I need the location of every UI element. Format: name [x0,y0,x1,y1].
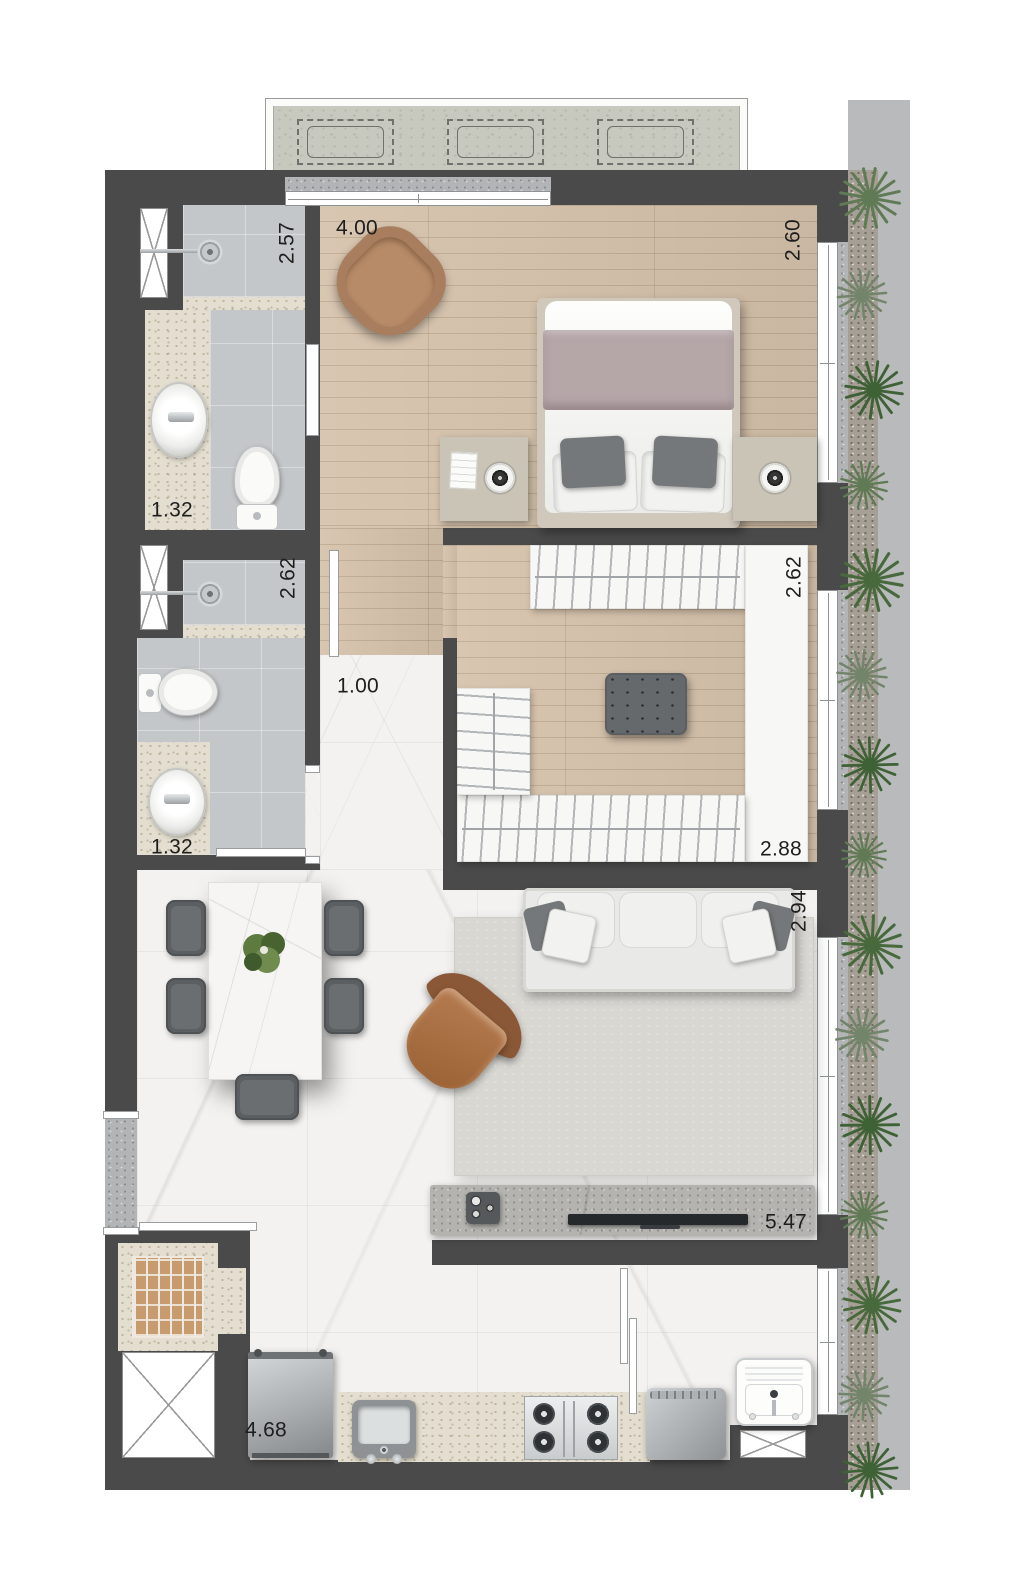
dim-living-width: 5.47 [765,1212,807,1233]
bath2-door-opening [305,773,320,856]
ac-condenser-unit [297,119,394,165]
table-lamp-icon [757,460,793,496]
bed-cushion [560,435,627,488]
sofa-pillow [721,908,778,965]
shower-head-icon [197,239,223,265]
dim-bath2-depth: 2.62 [278,557,299,599]
closet-rack-top [530,545,745,609]
dim-bath1-width: 1.32 [151,500,193,521]
vent-shaft [122,1352,215,1458]
dining-chair [166,978,206,1034]
book-on-nightstand [449,451,478,489]
toilet [232,446,282,534]
entry-threshold [103,1111,139,1119]
dim-hall-width: 1.00 [337,676,379,697]
sofa-pillow [541,908,598,965]
vent-shaft [140,208,168,298]
entry-landing [105,1118,137,1228]
dim-closet-width: 2.88 [760,839,802,860]
dim-closet-depth: 2.62 [784,556,805,598]
bath2-door [216,848,306,857]
cooktop [524,1396,618,1460]
shower-arm [140,591,198,595]
plant-centerpiece-icon [233,920,297,984]
refrigerator [248,1352,333,1458]
laundry-sliding-door [629,1318,637,1414]
ac-condenser-unit [597,119,694,165]
media-device-icon [466,1192,500,1224]
bath2-threshold [183,625,305,638]
sofa [523,888,795,992]
service-box-tab [218,1268,246,1334]
door-jamb [305,765,320,773]
window-sill-top [285,177,551,191]
toilet [138,666,220,720]
closet-rack-left [457,688,530,795]
washing-machine [646,1388,726,1460]
faucet-icon [168,412,194,422]
dim-bath1-depth: 2.57 [277,222,298,264]
floor-plan: 2.57 4.00 2.60 1.32 2.62 2.62 1.00 2.88 … [0,0,1024,1590]
shower-head-icon [197,581,223,607]
dim-kitchen-width: 4.68 [245,1420,287,1441]
dim-bedroom-width: 4.00 [336,218,378,239]
dining-chair [324,900,364,956]
dining-chair [324,978,364,1034]
laundry-tub [735,1358,813,1426]
ac-condenser-unit [447,119,544,165]
tv-stand [640,1225,680,1229]
window-bedroom-top [285,191,551,206]
closet-ottoman [605,673,687,735]
faucet-icon [164,794,190,804]
dim-bath2-width: 1.32 [151,837,193,858]
bath1-door [306,344,319,436]
tv [568,1214,748,1225]
door-jamb [305,856,320,864]
service-box-brick [132,1256,204,1338]
laundry-sliding-door [620,1268,628,1364]
terrace-slab [273,106,740,174]
dining-chair [235,1074,299,1120]
garden-plants [824,150,924,1500]
shower-arm [140,249,198,253]
entry-door [139,1222,257,1231]
bed-cushion [652,435,719,488]
bath1-threshold [183,297,305,310]
vent-shaft [140,545,168,630]
table-lamp-icon [482,460,518,496]
dim-bedroom-depth: 2.60 [783,219,804,261]
entry-threshold [103,1227,139,1235]
kitchen-sink [352,1400,416,1458]
wall-tv-laundry [432,1240,817,1265]
bed-blanket [543,330,734,410]
closet-rack-bottom [457,795,745,862]
closet-passage-floor [443,545,457,638]
dim-living-depth: 2.94 [789,890,810,932]
bedroom-door [329,550,339,657]
dining-chair [166,900,206,956]
vent-shaft [740,1430,806,1458]
wall-closet-living [443,862,817,890]
